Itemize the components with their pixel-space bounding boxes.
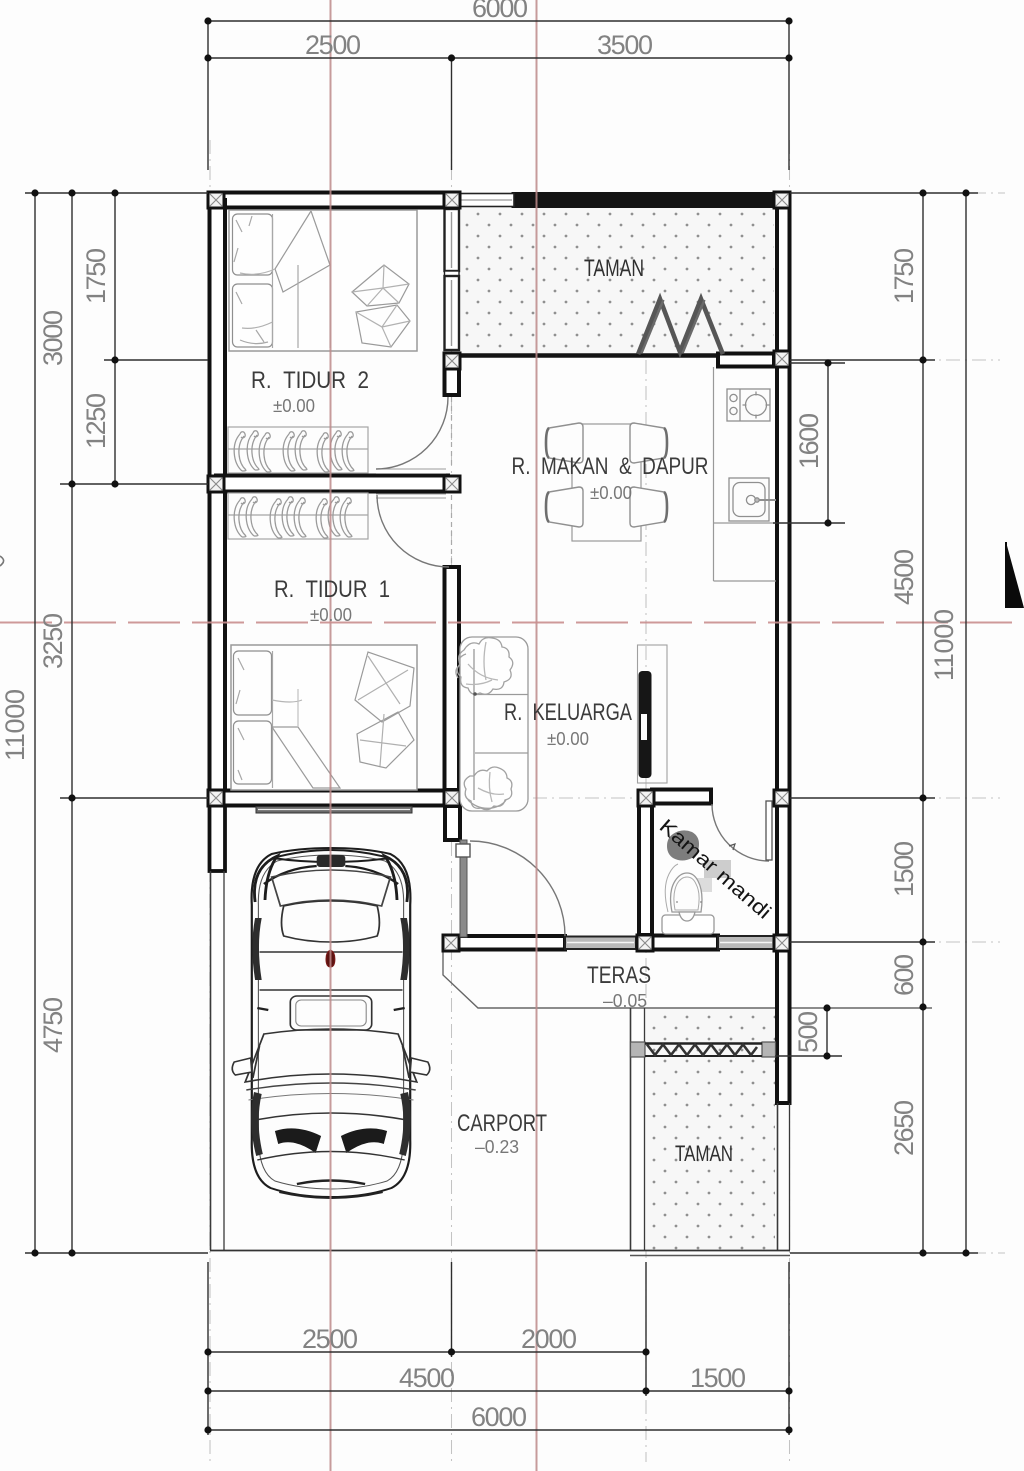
svg-text:3250: 3250	[38, 613, 68, 669]
svg-text:2000: 2000	[521, 1324, 577, 1354]
svg-text:TAMAN: TAMAN	[675, 1141, 733, 1166]
svg-text:–0.05: –0.05	[603, 991, 647, 1011]
svg-text:6000: 6000	[472, 0, 528, 23]
svg-text:1750: 1750	[889, 248, 919, 304]
svg-text:±0.00: ±0.00	[273, 396, 315, 416]
svg-text:–0.23: –0.23	[475, 1137, 519, 1157]
svg-text:4500: 4500	[399, 1363, 455, 1393]
svg-text:500: 500	[793, 1011, 823, 1053]
svg-text:R. TIDUR 1: R. TIDUR 1	[274, 576, 390, 603]
svg-text:2500: 2500	[302, 1324, 358, 1354]
svg-text:3000: 3000	[38, 310, 68, 366]
svg-text:6000: 6000	[471, 1402, 527, 1432]
svg-text:TAMAN: TAMAN	[584, 255, 644, 282]
svg-text:±0.00: ±0.00	[590, 483, 632, 503]
svg-text:CARPORT: CARPORT	[457, 1110, 547, 1137]
svg-text:R. TIDUR 2: R. TIDUR 2	[251, 367, 369, 394]
svg-text:4500: 4500	[889, 549, 919, 605]
svg-text:1600: 1600	[794, 413, 824, 469]
svg-text:11000: 11000	[0, 689, 30, 761]
svg-text:11000: 11000	[929, 609, 959, 681]
svg-text:600: 600	[889, 954, 919, 996]
svg-text:±0.00: ±0.00	[310, 605, 352, 625]
svg-text:1250: 1250	[81, 393, 111, 449]
svg-text:2500: 2500	[305, 30, 361, 60]
svg-text:4750: 4750	[38, 997, 68, 1053]
svg-text:TERAS: TERAS	[587, 962, 651, 989]
svg-text:R. MAKAN & DAPUR: R. MAKAN & DAPUR	[512, 453, 709, 480]
svg-text:3500: 3500	[597, 30, 653, 60]
svg-text:±0.00: ±0.00	[547, 729, 589, 749]
svg-text:1500: 1500	[690, 1363, 746, 1393]
svg-text:1500: 1500	[889, 841, 919, 897]
svg-text:2650: 2650	[889, 1100, 919, 1156]
svg-text:1750: 1750	[81, 248, 111, 304]
svg-text:R. KELUARGA: R. KELUARGA	[504, 699, 632, 726]
